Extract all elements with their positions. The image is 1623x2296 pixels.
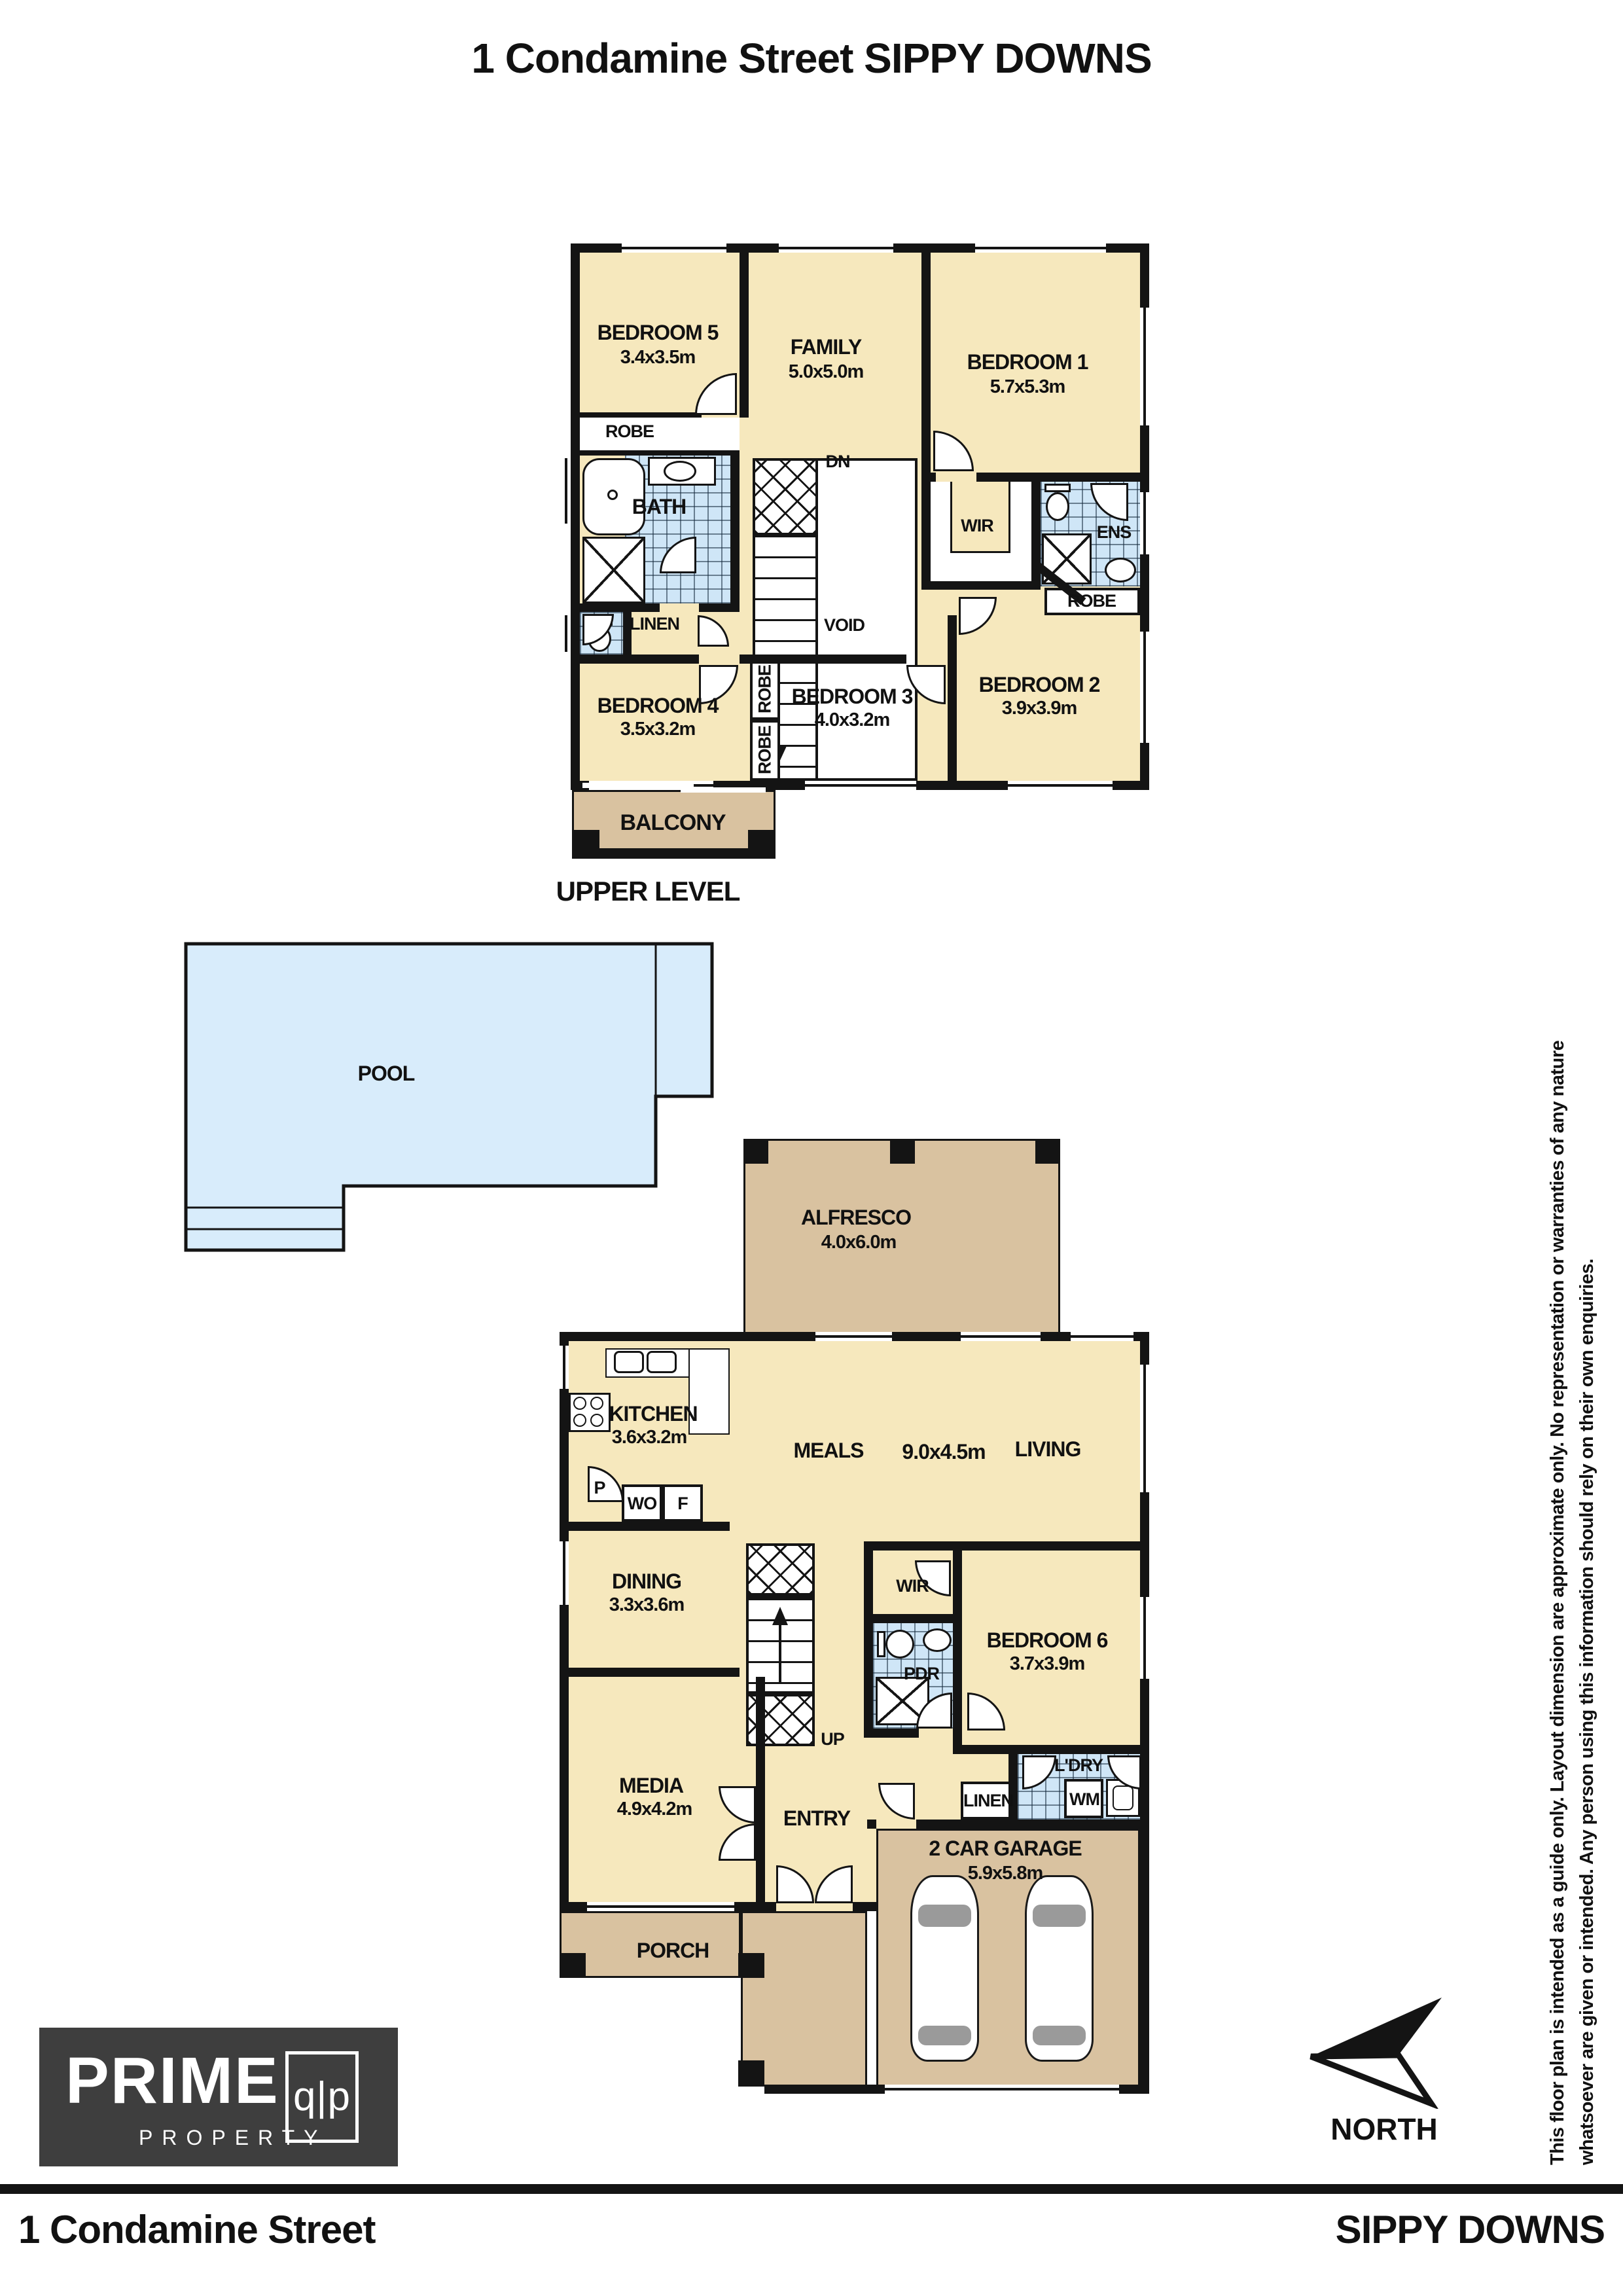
room-label-void: VOID bbox=[824, 615, 865, 636]
wall bbox=[740, 655, 780, 664]
room-label-balcony: BALCONY bbox=[620, 810, 725, 836]
room-label-porch: PORCH bbox=[637, 1939, 709, 1963]
north-label: NORTH bbox=[1299, 2111, 1469, 2147]
room-dims-alfresco: 4.0x6.0m bbox=[821, 1232, 897, 1253]
room-label-bedroom6: BEDROOM 6 bbox=[987, 1628, 1108, 1653]
post bbox=[890, 1139, 915, 1164]
wall bbox=[976, 473, 1140, 482]
wall bbox=[921, 482, 931, 589]
post bbox=[748, 830, 776, 859]
wall bbox=[571, 243, 580, 790]
car-rear-window bbox=[918, 2026, 971, 2045]
room-label-wir-upper: WIR bbox=[961, 516, 993, 536]
burner-icon bbox=[590, 1414, 603, 1427]
room-dims-bedroom5: 3.4x3.5m bbox=[620, 347, 696, 368]
wall bbox=[756, 1677, 765, 1911]
stair-up-arrow-icon bbox=[772, 1607, 788, 1625]
north-arrow-icon bbox=[1299, 1991, 1469, 2109]
room-label-bedroom2: BEDROOM 2 bbox=[979, 673, 1100, 697]
wall bbox=[572, 848, 776, 859]
room-dims-dining: 3.3x3.6m bbox=[609, 1594, 685, 1616]
wall bbox=[580, 450, 740, 456]
wall bbox=[580, 412, 702, 418]
laundry-tub-basin-icon bbox=[1113, 1785, 1133, 1810]
stair-arrow-stem bbox=[779, 1623, 781, 1682]
label-pantry: P bbox=[594, 1478, 605, 1498]
wall bbox=[873, 1729, 919, 1738]
wall bbox=[864, 1541, 1149, 1551]
room-label-linen-upper: LINEN bbox=[630, 614, 679, 634]
label-wm: WM bbox=[1069, 1789, 1099, 1810]
car-windshield bbox=[1033, 1905, 1086, 1927]
window bbox=[562, 615, 571, 652]
window bbox=[1140, 1597, 1149, 1679]
window bbox=[587, 1902, 734, 1911]
sliding-door bbox=[582, 783, 694, 788]
wall bbox=[764, 2085, 876, 2094]
garage-door bbox=[885, 2085, 1119, 2094]
room-dims-bedroom6: 3.7x3.9m bbox=[1010, 1653, 1085, 1675]
pool-shape bbox=[183, 941, 715, 1253]
disclaimer-line1: This floor plan is intended as a guide o… bbox=[1543, 640, 1573, 2165]
wall bbox=[780, 655, 906, 664]
post bbox=[738, 1953, 764, 1978]
window bbox=[560, 1346, 569, 1389]
room-label-meals: MEALS bbox=[794, 1439, 864, 1463]
post bbox=[560, 1953, 586, 1978]
wall bbox=[853, 1902, 876, 1911]
room-label-dining: DINING bbox=[612, 1570, 681, 1594]
window bbox=[779, 243, 893, 253]
burner-icon bbox=[573, 1397, 586, 1410]
disclaimer-line2: whatsoever are given or intended. Any pe… bbox=[1573, 640, 1602, 2165]
window bbox=[805, 781, 916, 790]
ens-basin-icon bbox=[1105, 558, 1136, 583]
disclaimer-text: This floor plan is intended as a guide o… bbox=[1543, 640, 1602, 2165]
room-dims-garage: 5.9x5.8m bbox=[968, 1863, 1043, 1884]
window bbox=[622, 243, 726, 253]
room-label-entry: ENTRY bbox=[783, 1806, 850, 1831]
sliding-door bbox=[815, 1332, 892, 1341]
wall bbox=[864, 1551, 873, 1738]
pdr-toilet-bowl-icon bbox=[885, 1630, 914, 1659]
room-label-bath: BATH bbox=[632, 495, 687, 519]
page-title: 1 Condamine Street SIPPY DOWNS bbox=[0, 34, 1623, 82]
room-label-bedroom1: BEDROOM 1 bbox=[967, 350, 1088, 374]
room-dims-bedroom2: 3.9x3.9m bbox=[1002, 698, 1077, 719]
wall bbox=[699, 603, 740, 612]
room-label-robe3: ROBE bbox=[755, 726, 776, 774]
room-dims-bedroom1: 5.7x5.3m bbox=[990, 376, 1065, 398]
wall bbox=[560, 1522, 730, 1531]
ens-toilet-bowl-icon bbox=[1046, 492, 1069, 521]
room-label-family: FAMILY bbox=[791, 335, 861, 359]
room-label-bedroom4: BEDROOM 4 bbox=[597, 694, 719, 718]
wall bbox=[740, 253, 749, 418]
car-rear-window bbox=[1033, 2026, 1086, 2045]
window bbox=[1140, 308, 1149, 425]
room-dims-meals-living: 9.0x4.5m bbox=[902, 1440, 985, 1464]
wall bbox=[916, 1820, 1149, 1829]
wall bbox=[1031, 482, 1041, 590]
pdr-basin-icon bbox=[923, 1628, 952, 1652]
wall bbox=[953, 1551, 962, 1754]
label-wall-oven: WO bbox=[628, 1494, 657, 1514]
wall bbox=[931, 473, 936, 482]
room-dims-family: 5.0x5.0m bbox=[789, 361, 864, 383]
stair-label-dn: DN bbox=[826, 452, 850, 472]
stair-winder-icon bbox=[753, 458, 818, 535]
burner-icon bbox=[573, 1414, 586, 1427]
room-label-kitchen: KITCHEN bbox=[609, 1402, 697, 1426]
wall bbox=[921, 253, 931, 482]
footer-street: 1 Condamine Street bbox=[18, 2207, 375, 2252]
post bbox=[738, 2060, 764, 2087]
label-fridge: F bbox=[677, 1494, 688, 1514]
post bbox=[572, 830, 599, 859]
room-label-linen-ground: LINEN bbox=[963, 1791, 1013, 1811]
robe5-area bbox=[580, 418, 740, 450]
logo-brand-text: PRIME bbox=[65, 2043, 279, 2119]
wall bbox=[948, 615, 957, 781]
logo-mark-icon: q|p bbox=[285, 2051, 359, 2143]
wall bbox=[560, 1332, 569, 1911]
room-label-garage: 2 CAR GARAGE bbox=[929, 1837, 1081, 1861]
wall bbox=[580, 655, 699, 664]
sliding-door bbox=[681, 787, 766, 793]
wall bbox=[730, 456, 740, 612]
room-label-ldry: L'DRY bbox=[1054, 1755, 1103, 1776]
wall bbox=[873, 1614, 953, 1623]
room-label-robe4: ROBE bbox=[755, 665, 776, 713]
window bbox=[1140, 1365, 1149, 1492]
room-dims-kitchen: 3.6x3.2m bbox=[612, 1427, 687, 1448]
room-label-bedroom5: BEDROOM 5 bbox=[597, 321, 719, 345]
room-label-media: MEDIA bbox=[619, 1774, 683, 1798]
floorplan-page: 1 Condamine Street SIPPY DOWNS bbox=[0, 0, 1623, 2296]
window bbox=[1071, 1332, 1133, 1341]
kitchen-sink-icon bbox=[647, 1351, 677, 1373]
room-label-pdr: PDR bbox=[904, 1664, 939, 1684]
shower-icon bbox=[582, 537, 645, 603]
window bbox=[1008, 781, 1113, 790]
room-label-bedroom3: BEDROOM 3 bbox=[792, 685, 913, 709]
room-dims-bedroom4: 3.5x3.2m bbox=[620, 719, 696, 740]
room-dims-bedroom3: 4.0x3.2m bbox=[815, 709, 890, 731]
wall bbox=[921, 581, 1041, 590]
window bbox=[1140, 632, 1149, 743]
window bbox=[975, 243, 1106, 253]
pool-label: POOL bbox=[358, 1062, 415, 1086]
sliding-door bbox=[961, 1332, 1041, 1341]
footer-suburb: SIPPY DOWNS bbox=[1336, 2207, 1605, 2252]
upper-level-label: UPPER LEVEL bbox=[556, 876, 740, 907]
car-windshield bbox=[918, 1905, 971, 1927]
footer-divider bbox=[0, 2184, 1623, 2194]
window bbox=[560, 1541, 569, 1605]
agency-logo: PRIME PROPERTY q|p bbox=[39, 2028, 398, 2166]
room-dims-media: 4.9x4.2m bbox=[617, 1799, 692, 1820]
room-label-ens: ENS bbox=[1097, 522, 1132, 543]
kitchen-sink-icon bbox=[614, 1351, 644, 1373]
basin-icon bbox=[664, 461, 696, 482]
room-label-alfresco: ALFRESCO bbox=[801, 1206, 911, 1230]
post bbox=[1035, 1139, 1060, 1164]
stair-winder-icon bbox=[746, 1543, 815, 1596]
wall bbox=[867, 1820, 876, 1829]
post bbox=[743, 1139, 768, 1164]
wall bbox=[580, 603, 660, 612]
room-label-robe5: ROBE bbox=[605, 422, 654, 442]
wall bbox=[953, 1745, 1149, 1754]
room-label-robe2: ROBE bbox=[1067, 591, 1116, 611]
stair-label-up: UP bbox=[821, 1729, 844, 1749]
wall bbox=[560, 1668, 740, 1677]
window bbox=[562, 458, 571, 524]
ens-toilet-tank-icon bbox=[1044, 484, 1071, 492]
alfresco-area bbox=[743, 1139, 1060, 1335]
pdr-toilet-tank-icon bbox=[877, 1631, 885, 1657]
window bbox=[1140, 492, 1149, 554]
room-label-living: LIVING bbox=[1015, 1437, 1081, 1462]
burner-icon bbox=[590, 1397, 603, 1410]
bathtub-drain-icon bbox=[607, 490, 618, 500]
room-label-wir-ground: WIR bbox=[896, 1576, 928, 1596]
